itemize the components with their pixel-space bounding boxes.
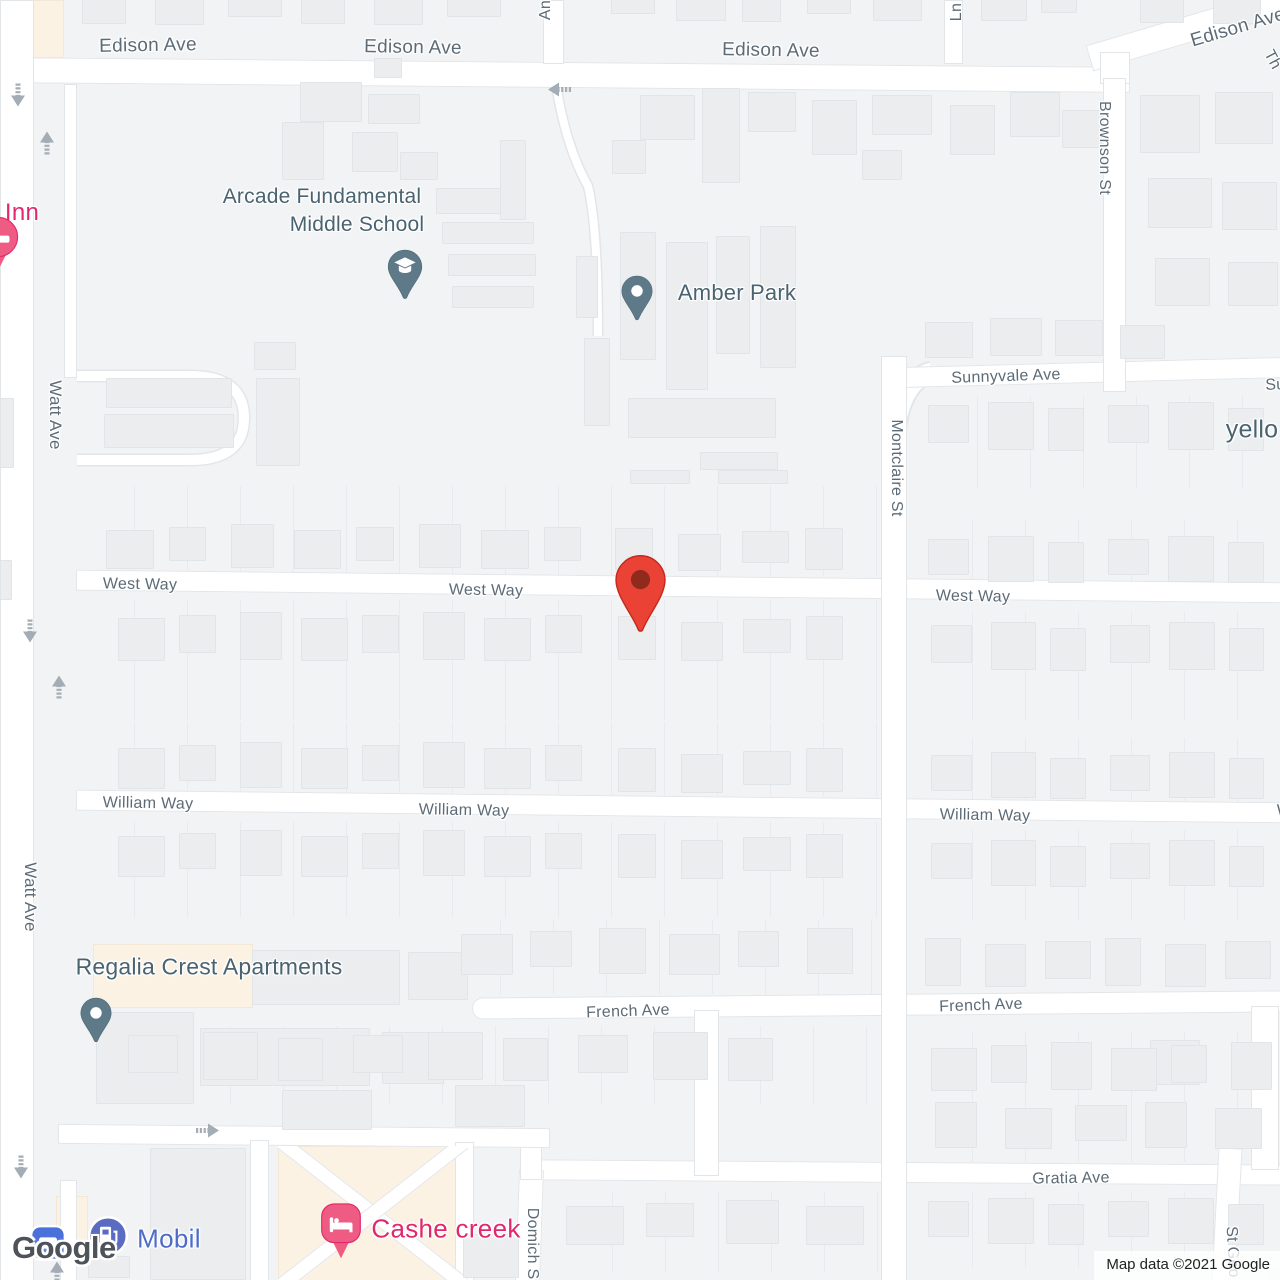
building (676, 0, 725, 21)
road-label-william-way: William Way (418, 801, 509, 821)
hotel-pin-icon[interactable] (320, 1202, 362, 1260)
building (612, 140, 646, 174)
building (807, 0, 851, 14)
road-label-west-way: West Way (936, 587, 1011, 606)
building (1048, 408, 1084, 451)
road-label-french-ave: French Ave (586, 1002, 670, 1023)
building (1225, 941, 1271, 979)
building (618, 748, 656, 792)
building (1050, 758, 1086, 799)
building (1105, 938, 1141, 986)
building (1229, 758, 1265, 799)
building (700, 452, 778, 470)
building (452, 286, 534, 308)
building (988, 1198, 1034, 1244)
building (362, 833, 399, 869)
road-label-edison-ave: Edison Ave (99, 34, 197, 58)
road-label-west-way: West Way (103, 575, 178, 594)
building (1228, 542, 1264, 583)
building (950, 105, 995, 155)
building (104, 414, 234, 448)
building (301, 748, 348, 789)
building (1108, 1201, 1149, 1237)
oneway-arrow-icon (10, 82, 26, 113)
building (646, 1203, 694, 1237)
building (240, 830, 282, 876)
building (455, 1085, 525, 1127)
building (362, 745, 399, 781)
building (807, 928, 854, 974)
building (1055, 320, 1103, 356)
road-label-watt-ave: Watt Ave (20, 862, 40, 932)
building (169, 527, 207, 561)
hotel-pin-clipped-icon[interactable] (0, 216, 19, 272)
road-label-william-way: William Way (102, 794, 193, 814)
building (1171, 1045, 1207, 1083)
building (726, 1200, 779, 1244)
building (118, 748, 165, 789)
building (666, 242, 708, 390)
oneway-arrow-icon (13, 1154, 29, 1185)
building (611, 0, 655, 14)
building (423, 742, 465, 788)
building (301, 0, 345, 24)
building (545, 745, 582, 781)
building (228, 0, 282, 17)
building (1140, 0, 1184, 23)
building (1222, 182, 1277, 230)
building (1051, 1042, 1092, 1090)
building (862, 150, 902, 180)
road (540, 1159, 1280, 1185)
road-label-edison-ave: Edison Ave (364, 36, 462, 60)
building (106, 530, 154, 569)
building (812, 100, 857, 155)
poi-label-mobil: Mobil (137, 1224, 201, 1255)
building (118, 836, 165, 877)
building (301, 836, 348, 877)
road (64, 84, 77, 378)
building (282, 122, 324, 180)
road-label-montclaire-st: Montclaire St (887, 419, 905, 516)
building (576, 256, 598, 318)
apartments-pin-icon[interactable] (79, 997, 113, 1044)
building (669, 934, 721, 975)
building (1145, 1102, 1187, 1148)
building (1155, 258, 1210, 306)
building (1169, 622, 1215, 670)
building (1110, 755, 1151, 791)
road-label-william-way: William Way (1276, 802, 1280, 822)
building (981, 0, 1027, 21)
building (991, 622, 1037, 670)
oneway-arrow-icon (51, 675, 67, 706)
building (1110, 625, 1151, 663)
road-label-brownson-st: Brownson St (1095, 101, 1113, 195)
building (530, 931, 572, 967)
building (928, 1201, 969, 1237)
building (743, 751, 791, 785)
building (1231, 1042, 1272, 1090)
building (1108, 405, 1149, 443)
building (1215, 92, 1273, 144)
map-page: { "app": { "watermark": "Google", "attri… (0, 0, 1280, 1280)
building (203, 1032, 258, 1080)
building (118, 618, 165, 661)
building (353, 1035, 403, 1073)
building (240, 612, 282, 660)
building (738, 931, 780, 967)
building (873, 0, 922, 21)
building (1229, 846, 1265, 887)
building (630, 470, 690, 484)
parcel-block (920, 830, 1280, 920)
school-pin-icon[interactable] (386, 249, 424, 301)
building (1045, 941, 1091, 979)
oneway-arrow-icon (22, 618, 38, 649)
building (256, 378, 300, 466)
building (991, 1045, 1027, 1083)
building (805, 528, 843, 570)
building (928, 405, 969, 443)
building (806, 748, 844, 792)
oneway-arrow-icon (552, 77, 568, 108)
poi-label-middle-school: Middle School (290, 213, 425, 237)
building (179, 833, 216, 869)
building (681, 840, 724, 879)
building (1111, 1048, 1157, 1091)
building (1169, 840, 1215, 886)
building (925, 322, 973, 358)
building (106, 378, 232, 408)
building (1110, 843, 1151, 879)
building (300, 82, 362, 122)
building (743, 837, 791, 871)
google-logo: Google (12, 1230, 116, 1266)
building (584, 338, 610, 426)
building (1229, 628, 1265, 671)
building (1168, 402, 1214, 450)
building (400, 152, 438, 180)
building (743, 619, 791, 653)
building (1050, 628, 1086, 671)
parcel-block (920, 612, 1280, 720)
building (254, 342, 296, 370)
building (423, 830, 465, 876)
building (628, 398, 776, 438)
building (150, 1148, 246, 1280)
building (988, 536, 1034, 582)
map-attribution: Map data ©2021 Google (1094, 1251, 1280, 1280)
building (356, 527, 394, 561)
building (1005, 1108, 1052, 1149)
building (991, 752, 1037, 798)
building (742, 531, 790, 563)
building (578, 1035, 628, 1073)
building (640, 95, 695, 140)
building (544, 527, 582, 561)
building (1108, 539, 1149, 575)
building (991, 840, 1037, 886)
building (806, 834, 844, 878)
building (362, 615, 399, 653)
building (1041, 0, 1077, 13)
building (278, 1038, 323, 1081)
map-canvas[interactable]: Google Map data ©2021 Google Edison AveE… (0, 0, 1280, 1280)
building (931, 843, 972, 879)
building (155, 0, 204, 25)
road-label-ln: Ln (948, 3, 966, 21)
oneway-arrow-icon (199, 1118, 215, 1149)
building (1120, 325, 1165, 359)
building (179, 615, 216, 653)
building (931, 625, 972, 663)
building (179, 745, 216, 781)
building (681, 754, 724, 793)
road-label-edison-ave: Edison Ave (722, 39, 820, 63)
building (702, 88, 740, 183)
building (681, 622, 724, 661)
road-label-domich-st: Domich St (523, 1208, 541, 1280)
building (1048, 542, 1084, 583)
poi-label-yello: yello (1226, 416, 1278, 445)
building (82, 0, 126, 24)
building (931, 1048, 977, 1091)
building (301, 618, 348, 661)
building (1168, 1198, 1214, 1244)
building (240, 742, 282, 788)
building (925, 938, 961, 986)
building (0, 560, 12, 600)
building (408, 952, 468, 1000)
building (500, 140, 526, 220)
building (1168, 536, 1214, 582)
building (806, 616, 844, 660)
building (484, 618, 531, 661)
building (1010, 92, 1060, 137)
building (1228, 262, 1278, 306)
building (484, 836, 531, 877)
road-label-west-way: West Way (449, 581, 524, 600)
poi-label-amber-park: Amber Park (678, 280, 796, 306)
building (931, 755, 972, 791)
building (1215, 1108, 1262, 1149)
building (599, 928, 646, 974)
building (742, 0, 781, 22)
building (484, 748, 531, 789)
building (872, 95, 932, 135)
building (545, 833, 582, 869)
building (748, 92, 796, 132)
building (985, 944, 1026, 987)
road-label-french-ave: French Ave (939, 996, 1023, 1017)
road (250, 1140, 269, 1280)
building (428, 1032, 483, 1080)
building (503, 1038, 548, 1081)
oneway-arrow-icon (39, 131, 55, 162)
building (988, 402, 1034, 450)
road-label-watt-ave: Watt Ave (45, 380, 65, 450)
building (231, 524, 274, 568)
building (545, 615, 582, 653)
building (728, 1038, 773, 1081)
building (1169, 752, 1215, 798)
building (294, 530, 342, 569)
building (419, 524, 462, 568)
building (653, 1032, 708, 1080)
building (935, 1102, 977, 1148)
building (566, 1206, 624, 1245)
building (1075, 1105, 1127, 1141)
poi-label-arcade-fundamental: Arcade Fundamental (223, 185, 422, 209)
building (352, 132, 398, 172)
building (618, 834, 656, 878)
building (442, 222, 534, 244)
building (481, 530, 529, 569)
park-pin-icon[interactable] (620, 275, 654, 322)
building (423, 612, 465, 660)
building (1050, 846, 1086, 887)
building (448, 254, 536, 276)
building (990, 318, 1042, 356)
building (1165, 944, 1206, 987)
road-label-gratia-ave: Gratia Ave (1032, 1169, 1110, 1188)
road-label-sunnyvale-ave: Sunnyvale Ave (951, 366, 1061, 388)
building (374, 58, 402, 78)
destination-pin-icon[interactable] (614, 552, 667, 637)
road-label-sunnyvale-ave: Sunnyvale Ave (1265, 373, 1280, 395)
building (678, 534, 721, 571)
building (1148, 178, 1212, 228)
poi-label-regalia-crest-apartments: Regalia Crest Apartments (76, 954, 343, 981)
building (928, 539, 969, 575)
road-label-th: Th (1260, 47, 1280, 72)
building (282, 1090, 372, 1130)
building (1048, 1204, 1084, 1245)
building (374, 0, 423, 25)
road-label-william-way: William Way (939, 806, 1030, 826)
road-label-an: An (537, 0, 555, 20)
building (806, 1206, 864, 1245)
poi-label-cashe-creek: Cashe creek (371, 1214, 520, 1245)
building (447, 0, 501, 17)
building (461, 934, 513, 975)
building (1140, 95, 1200, 153)
building (368, 94, 420, 124)
building (718, 470, 788, 484)
building (0, 398, 14, 468)
building (128, 1035, 178, 1073)
